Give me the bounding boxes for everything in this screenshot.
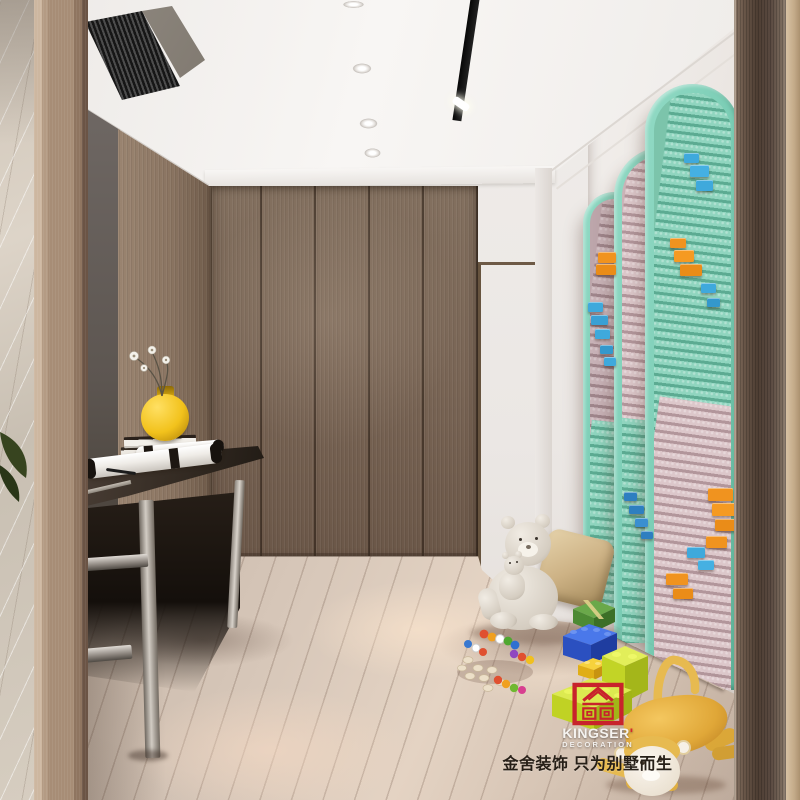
- interior-render-photo: KINGSER' DECORATION 金舍装饰 只为别墅而生: [0, 0, 800, 800]
- lego-accent-brick-orange: [673, 588, 693, 599]
- brand-apostrophe: ': [630, 725, 634, 741]
- lego-accent-brick-blue: [690, 165, 709, 177]
- lego-accent-brick-orange: [598, 252, 616, 263]
- wardrobe-base-line: [208, 553, 478, 557]
- lego-accent-brick-blue: [701, 283, 716, 293]
- small-teddy-head: [504, 556, 524, 575]
- lego-accent-brick-orange: [680, 264, 702, 276]
- brick-stud: [581, 627, 588, 631]
- brand-tagline: 金舍装饰 只为别墅而生: [500, 750, 675, 774]
- lego-accent-brick-blue: [624, 492, 637, 501]
- recessed-downlight: [340, 0, 367, 9]
- small-teddy-eye: [509, 562, 511, 564]
- brick-stud: [584, 661, 590, 664]
- recessed-downlight: [357, 117, 380, 130]
- lego-arch-interior: [654, 93, 731, 690]
- lego-accent-brick-blue: [707, 298, 720, 307]
- lego-accent-brick-orange: [708, 488, 733, 501]
- brick-stud: [570, 630, 577, 634]
- lego-accent-brick-blue: [696, 180, 713, 191]
- lego-accent-brick-orange: [674, 250, 694, 262]
- flower-stems: [100, 338, 190, 408]
- brand-name: KINGSER': [548, 725, 648, 741]
- right-door-pillar: [734, 0, 786, 800]
- wardrobe-panel-wall: [208, 186, 478, 556]
- lego-accent-brick-blue: [629, 505, 644, 514]
- teddy-bear-nose: [526, 545, 531, 549]
- lego-accent-brick-blue: [600, 345, 613, 354]
- lego-accent-brick-orange: [666, 573, 688, 585]
- lego-accent-brick-blue: [591, 315, 608, 325]
- small-teddy-eye: [516, 561, 518, 563]
- lego-accent-brick-blue: [698, 560, 714, 570]
- teddy-bear-eye: [535, 537, 538, 540]
- plant-leaf: [0, 422, 46, 514]
- lego-accent-brick-blue: [604, 357, 616, 366]
- lego-accent-brick-blue: [684, 153, 699, 163]
- lego-accent-brick-blue: [687, 547, 705, 558]
- recessed-downlight: [362, 147, 383, 159]
- lego-accent-brick-orange: [706, 536, 727, 548]
- small-teddy-body: [499, 572, 525, 600]
- lego-accent-brick-orange: [596, 264, 616, 275]
- door-frame-left: [34, 0, 88, 800]
- lego-accent-brick-blue: [641, 531, 653, 539]
- toy-rattles: [440, 612, 560, 704]
- brick-stud: [593, 628, 600, 632]
- teddy-bear-eye: [519, 538, 522, 541]
- brick-stud: [604, 632, 611, 636]
- brand-logo: [572, 682, 624, 726]
- right-edge-wood-strip: [786, 0, 800, 800]
- brand-subtitle: DECORATION: [548, 740, 648, 749]
- brand-name-text: KINGSER: [562, 725, 629, 741]
- lego-accent-brick-blue: [595, 329, 610, 339]
- lego-accent-brick-blue: [635, 518, 648, 527]
- lego-accent-brick-blue: [588, 302, 603, 312]
- lego-accent-brick-orange: [670, 238, 686, 248]
- table-leg-shadow: [128, 750, 168, 761]
- recessed-downlight: [350, 62, 374, 75]
- scroll-band: [168, 448, 179, 469]
- marble-wall: [0, 0, 34, 800]
